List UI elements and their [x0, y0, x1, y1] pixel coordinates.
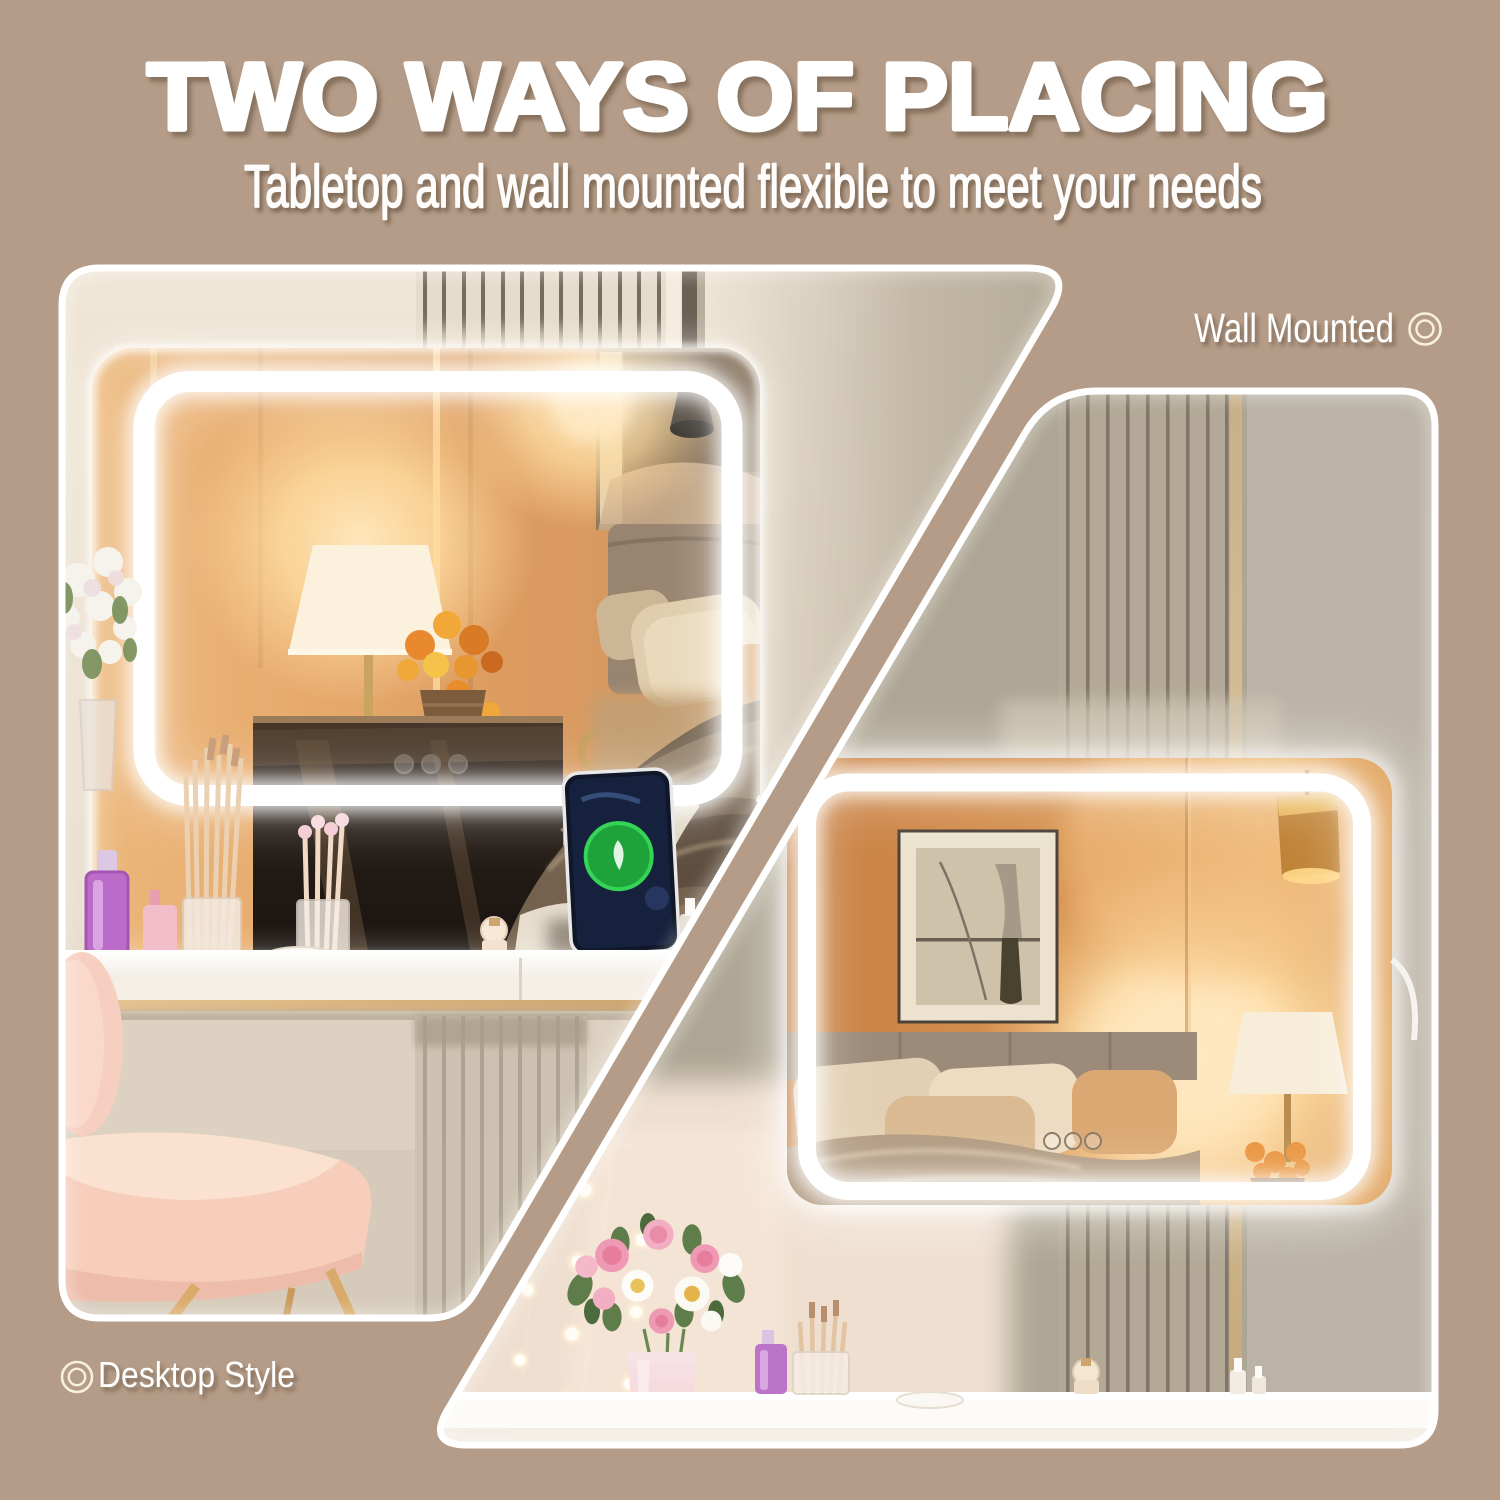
- svg-text:TWO WAYS OF PLACING: TWO WAYS OF PLACING: [147, 44, 1328, 150]
- svg-text:Desktop Style: Desktop Style: [98, 1354, 295, 1395]
- svg-text:Tabletop and wall mounted flex: Tabletop and wall mounted flexible to me…: [244, 153, 1262, 220]
- svg-text:Wall Mounted: Wall Mounted: [1194, 305, 1394, 351]
